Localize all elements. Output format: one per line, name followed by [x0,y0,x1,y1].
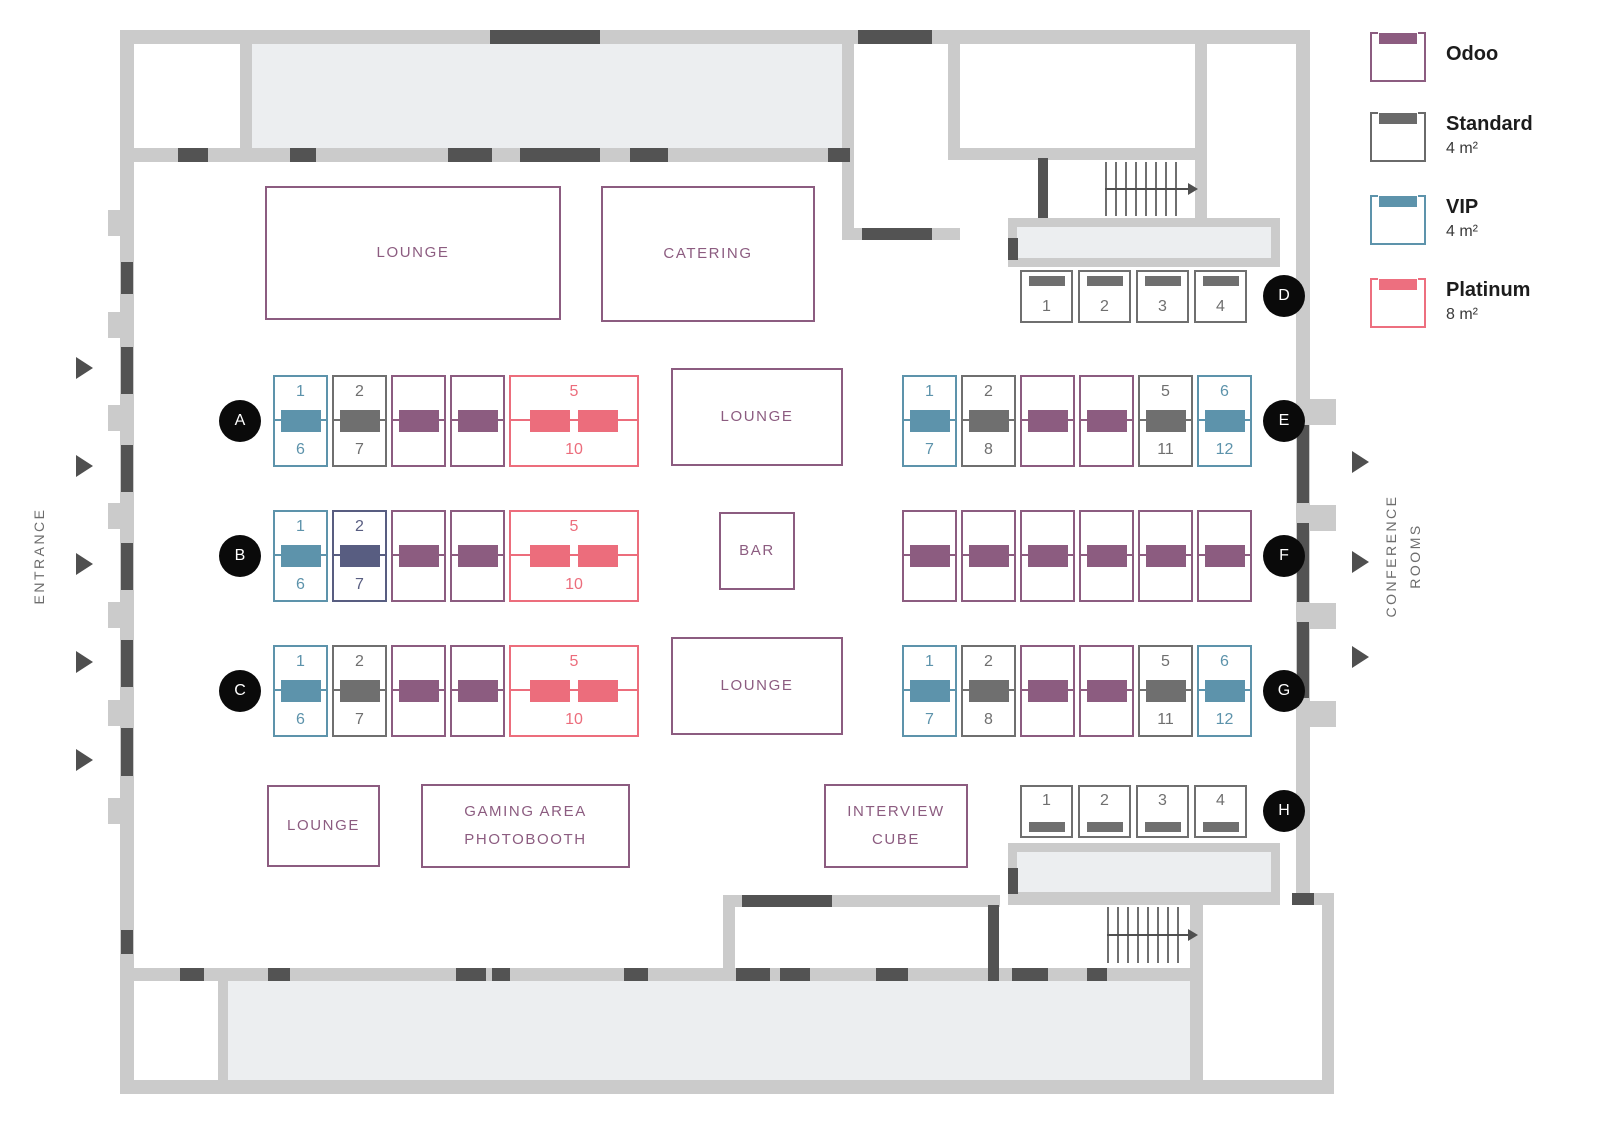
booth-desk [1029,276,1065,286]
row-marker-H: H [1263,790,1305,832]
conference-arrow-icon [1352,551,1369,573]
booth-number: 2 [334,653,385,671]
door-segment [858,30,932,44]
booth-desk [969,410,1009,432]
door-segment [1038,158,1048,218]
entrance-arrow-icon [76,651,93,673]
row-marker-B: B [219,535,261,577]
door-segment [742,895,832,907]
booth-H4-standard: 4 [1194,785,1247,838]
booth-desk [1203,276,1239,286]
room-fill [228,981,1190,1080]
odoo-booth-icon [1370,32,1426,82]
booth-F4-odoo [1079,510,1134,602]
booth-B3-odoo [391,510,446,602]
legend-item-platinum: Platinum 8 m² [1370,278,1530,328]
wall [723,895,735,981]
booth-E3-odoo [1020,375,1075,467]
conference-arrow-icon [1352,646,1369,668]
booth-H2-standard: 2 [1078,785,1131,838]
booth-G4-odoo [1079,645,1134,737]
door-segment [1292,893,1314,905]
booth-number: 7 [334,576,385,594]
booth-desk [399,545,439,567]
booth-number: 5 [511,653,637,671]
booth-B4-odoo [450,510,505,602]
door-segment [180,968,204,981]
booth-number: 12 [1199,441,1250,459]
booth-desk [1205,410,1245,432]
booth-C2-standard: 27 [332,645,387,737]
pillar [1310,505,1336,531]
booth-desk [399,680,439,702]
area-lounge-top: LOUNGE [265,186,561,320]
booth-G2-standard: 28 [961,645,1016,737]
booth-number: 5 [1140,383,1191,401]
booth-G1-vip: 17 [902,645,957,737]
legend-size: 4 m² [1446,138,1533,159]
door-segment [624,968,648,981]
booth-C1-vip: 16 [273,645,328,737]
door-segment [1008,238,1018,260]
pillar [1310,603,1336,629]
booth-number: 7 [904,711,955,729]
door-segment [121,347,133,394]
booth-number: 5 [1140,653,1191,671]
booth-C4-odoo [450,645,505,737]
booth-row-D: 1234 [1020,270,1247,323]
row-marker-A: A [219,400,261,442]
wall [948,44,960,148]
booth-desk [458,410,498,432]
door-segment [121,543,133,590]
booth-number: 4 [1196,792,1245,810]
booth-desk [1087,680,1127,702]
room-fill [252,44,842,148]
booth-number: 8 [963,441,1014,459]
booth-row-F [902,510,1252,602]
booth-desk [910,410,950,432]
booth-number: 11 [1140,711,1191,729]
booth-A3-odoo [391,375,446,467]
booth-E4-odoo [1079,375,1134,467]
vip-booth-icon [1370,195,1426,245]
booth-G6-vip: 612 [1197,645,1252,737]
booth-number: 2 [334,383,385,401]
booth-number: 12 [1199,711,1250,729]
door-segment [828,148,850,162]
booth-row-C: 1627510 [273,645,639,737]
booth-desk [340,545,380,567]
entrance-arrow-icon [76,553,93,575]
booth-desk [530,680,570,702]
door-segment [178,148,208,162]
booth-desk [281,680,321,702]
booth-row-G: 1728511612 [902,645,1252,737]
door-segment [290,148,316,162]
area-bar: BAR [719,512,795,590]
row-marker-D: D [1263,275,1305,317]
booth-desk [1203,822,1239,832]
area-interview-cube: INTERVIEW CUBE [824,784,968,868]
booth-H1-standard: 1 [1020,785,1073,838]
wall [1322,893,1334,1092]
platinum-booth-icon [1370,278,1426,328]
legend-label: Standard [1446,112,1533,136]
stairs-arrow-icon [1107,934,1189,936]
booth-number: 1 [275,518,326,536]
booth-number: 6 [275,441,326,459]
door-segment [1297,425,1309,503]
wall [240,44,252,148]
booth-desk [1028,680,1068,702]
wall [842,44,854,240]
pillar [108,210,134,236]
row-marker-G: G [1263,670,1305,712]
door-segment [1087,968,1107,981]
booth-desk [340,680,380,702]
booth-number: 10 [511,441,637,459]
area-catering: CATERING [601,186,815,322]
area-lounge-mid-a: LOUNGE [671,368,843,466]
booth-desk [1145,822,1181,832]
door-segment [456,968,486,981]
booth-desk [969,680,1009,702]
legend-item-standard: Standard 4 m² [1370,112,1533,162]
wall [948,148,1207,160]
wall [120,1080,1334,1094]
booth-F6-odoo [1197,510,1252,602]
booth-desk [1146,410,1186,432]
booth-number: 3 [1138,792,1187,810]
pillar [1310,399,1336,425]
door-segment [520,148,600,162]
booth-desk [578,545,618,567]
pillar [108,700,134,726]
booth-row-B: 1627510 [273,510,639,602]
door-segment [121,640,133,687]
stairs-bottom [1107,907,1179,963]
booth-G5-standard: 511 [1138,645,1193,737]
booth-E5-standard: 511 [1138,375,1193,467]
pillar [108,503,134,529]
pillar [108,405,134,431]
booth-desk [458,680,498,702]
entrance-arrow-icon [76,455,93,477]
booth-desk [1029,822,1065,832]
booth-desk [1087,545,1127,567]
door-segment [876,968,908,981]
booth-number: 1 [904,653,955,671]
booth-desk [281,545,321,567]
room-fill [1017,227,1271,258]
stairs-top [1105,162,1177,216]
door-segment [988,905,999,981]
area-lounge-bottom: LOUNGE [267,785,380,867]
legend-label: Platinum [1446,278,1530,302]
booth-number: 3 [1138,298,1187,316]
booth-number: 6 [275,576,326,594]
booth-B5-platinum: 510 [509,510,639,602]
wall [120,30,1310,44]
booth-F5-odoo [1138,510,1193,602]
door-segment [736,968,770,981]
booth-number: 5 [511,518,637,536]
booth-C5-platinum: 510 [509,645,639,737]
door-segment [268,968,290,981]
booth-number: 6 [1199,383,1250,401]
booth-number: 2 [963,653,1014,671]
booth-E1-vip: 17 [902,375,957,467]
door-segment [630,148,668,162]
stairs-arrow-icon [1105,188,1189,190]
booth-D4-standard: 4 [1194,270,1247,323]
booth-desk [1028,410,1068,432]
booth-number: 7 [334,711,385,729]
booth-desk [969,545,1009,567]
booth-E6-vip: 612 [1197,375,1252,467]
booth-number: 6 [275,711,326,729]
door-segment [780,968,810,981]
booth-H3-standard: 3 [1136,785,1189,838]
pillar [1310,701,1336,727]
booth-number: 1 [1022,298,1071,316]
booth-D3-standard: 3 [1136,270,1189,323]
booth-desk [1145,276,1181,286]
booth-number: 10 [511,711,637,729]
standard-booth-icon [1370,112,1426,162]
booth-number: 2 [334,518,385,536]
booth-number: 5 [511,383,637,401]
booth-desk [1087,822,1123,832]
booth-B1-vip: 16 [273,510,328,602]
booth-number: 1 [275,383,326,401]
legend-size: 8 m² [1446,304,1530,325]
door-segment [1008,868,1018,894]
booth-F1-odoo [902,510,957,602]
booth-D2-standard: 2 [1078,270,1131,323]
booth-B2-reserved: 27 [332,510,387,602]
booth-number: 6 [1199,653,1250,671]
booth-F3-odoo [1020,510,1075,602]
pillar [108,798,134,824]
legend-label: VIP [1446,195,1478,219]
booth-row-H: 1234 [1020,785,1247,838]
booth-A4-odoo [450,375,505,467]
booth-D1-standard: 1 [1020,270,1073,323]
booth-number: 7 [904,441,955,459]
booth-number: 1 [1022,792,1071,810]
booth-number: 8 [963,711,1014,729]
door-segment [490,30,600,44]
door-segment [492,968,510,981]
booth-desk [1028,545,1068,567]
booth-desk [1205,545,1245,567]
booth-number: 11 [1140,441,1191,459]
booth-number: 1 [904,383,955,401]
booth-desk [910,545,950,567]
booth-desk [578,410,618,432]
booth-desk [1146,545,1186,567]
legend-label: Odoo [1446,42,1498,66]
booth-desk [910,680,950,702]
room-fill [1017,852,1271,892]
booth-desk [1205,680,1245,702]
booth-desk [1087,276,1123,286]
booth-A5-platinum: 510 [509,375,639,467]
floor-plan: LOUNGE CATERING LOUNGE BAR LOUNGE LOUNGE… [0,0,1600,1124]
booth-row-E: 1728511612 [902,375,1252,467]
booth-desk [1146,680,1186,702]
booth-number: 1 [275,653,326,671]
booth-number: 7 [334,441,385,459]
booth-A2-standard: 27 [332,375,387,467]
door-segment [448,148,492,162]
wall [218,981,228,1080]
row-marker-F: F [1263,535,1305,577]
booth-G3-odoo [1020,645,1075,737]
booth-desk [578,680,618,702]
entrance-label: ENTRANCE [28,507,52,604]
conference-arrow-icon [1352,451,1369,473]
booth-desk [340,410,380,432]
booth-desk [530,410,570,432]
door-segment [121,445,133,492]
legend-item-odoo: Odoo [1370,32,1498,82]
row-marker-E: E [1263,400,1305,442]
door-segment [121,728,133,776]
booth-desk [530,545,570,567]
booth-C3-odoo [391,645,446,737]
booth-number: 4 [1196,298,1245,316]
area-lounge-mid-c: LOUNGE [671,637,843,735]
door-segment [121,262,133,294]
legend-item-vip: VIP 4 m² [1370,195,1478,245]
booth-number: 2 [1080,792,1129,810]
booth-number: 2 [1080,298,1129,316]
booth-number: 2 [963,383,1014,401]
door-segment [1012,968,1048,981]
area-gaming-photobooth: GAMING AREA PHOTOBOOTH [421,784,630,868]
door-segment [862,228,932,240]
booth-F2-odoo [961,510,1016,602]
pillar [108,602,134,628]
pillar [108,312,134,338]
booth-A1-vip: 16 [273,375,328,467]
booth-E2-standard: 28 [961,375,1016,467]
booth-desk [281,410,321,432]
booth-desk [399,410,439,432]
legend-size: 4 m² [1446,221,1478,242]
door-segment [121,930,133,954]
row-marker-C: C [219,670,261,712]
booth-desk [458,545,498,567]
booth-row-A: 1627510 [273,375,639,467]
conference-rooms-label: CONFERENCE ROOMS [1380,494,1428,617]
booth-desk [1087,410,1127,432]
entrance-arrow-icon [76,749,93,771]
booth-number: 10 [511,576,637,594]
entrance-arrow-icon [76,357,93,379]
